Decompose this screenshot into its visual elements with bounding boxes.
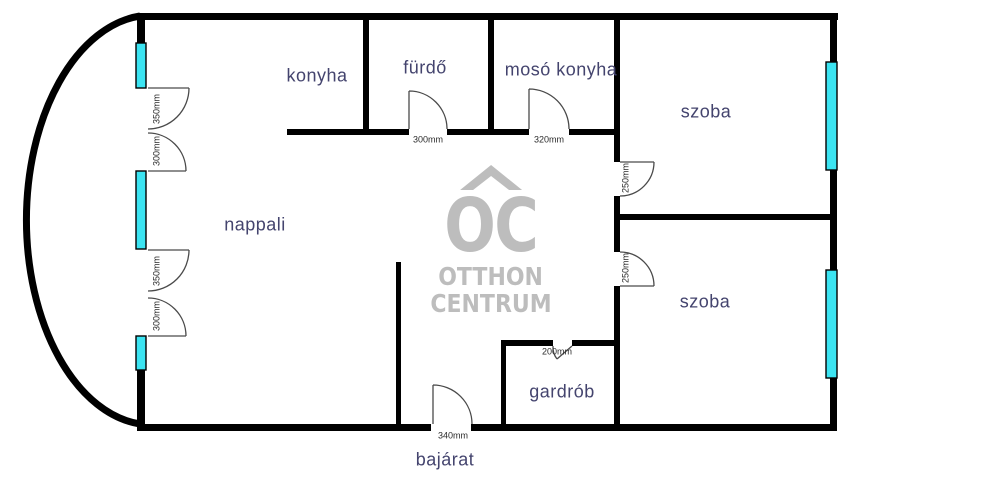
balcony-arc-wall (26, 16, 140, 424)
room-label-moso-konyha: mosó konyha (505, 60, 618, 81)
watermark-line1: OTTHON (439, 263, 544, 290)
window-szoba-bottom (826, 270, 837, 378)
room-label-gardrob: gardrób (529, 382, 595, 403)
dim-balcony-door-top-a: 350mm (153, 94, 162, 124)
floor-plan: OC OTTHON CENTRUM konyha fürdő mosó kony… (0, 0, 988, 500)
dim-szoba-bottom-door: 250mm (622, 253, 631, 283)
dim-gardrob-door: 200mm (542, 348, 572, 357)
watermark-line2: CENTRUM (430, 290, 551, 317)
room-label-furdo: fürdő (403, 58, 447, 79)
entrance-door (433, 385, 472, 424)
window-szoba-top (826, 62, 837, 170)
watermark-initials: OC (445, 190, 538, 263)
dim-entrance-door: 340mm (438, 432, 468, 441)
room-label-nappali: nappali (224, 215, 286, 236)
room-label-konyha: konyha (286, 66, 347, 87)
dim-balcony-door-bottom-a: 350mm (153, 256, 162, 286)
room-label-bejarat: bajárat (416, 450, 475, 471)
dim-furdo-door: 300mm (413, 136, 443, 145)
moso-konyha-door (529, 89, 569, 129)
dim-szoba-top-door: 250mm (622, 163, 631, 193)
window-left-glazing (136, 43, 146, 370)
room-label-szoba-bottom: szoba (680, 292, 731, 313)
dim-moso-door: 320mm (534, 136, 564, 145)
furdo-door (409, 91, 447, 129)
dim-balcony-door-bottom-b: 300mm (153, 301, 162, 331)
room-label-szoba-top: szoba (681, 102, 732, 123)
dim-balcony-door-top-b: 300mm (153, 136, 162, 166)
otthon-centrum-watermark: OC OTTHON CENTRUM (422, 164, 560, 317)
